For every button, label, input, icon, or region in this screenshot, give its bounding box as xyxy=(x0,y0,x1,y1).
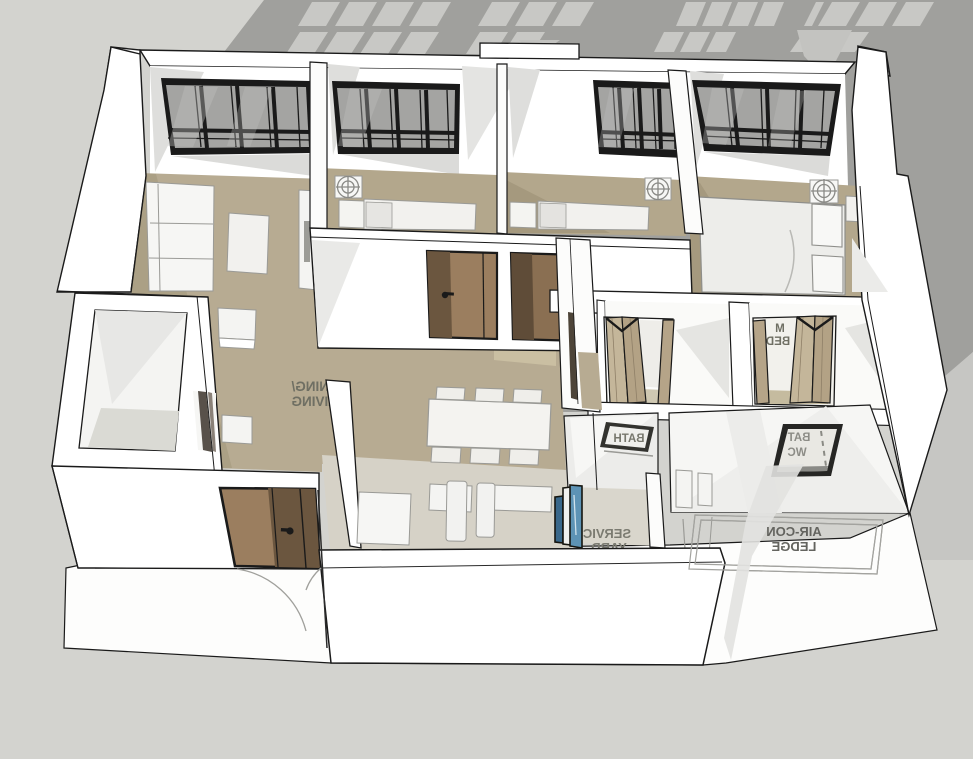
svg-text:LEDGE: LEDGE xyxy=(771,539,816,554)
svg-text:SERVIC: SERVIC xyxy=(582,526,631,541)
svg-text:BAT: BAT xyxy=(788,432,811,444)
svg-text:M: M xyxy=(775,323,785,335)
svg-text:BATH: BATH xyxy=(613,433,644,445)
svg-text:BED: BED xyxy=(766,336,790,348)
svg-text:WC: WC xyxy=(787,447,806,459)
svg-text:AIR-CON: AIR-CON xyxy=(766,524,822,539)
